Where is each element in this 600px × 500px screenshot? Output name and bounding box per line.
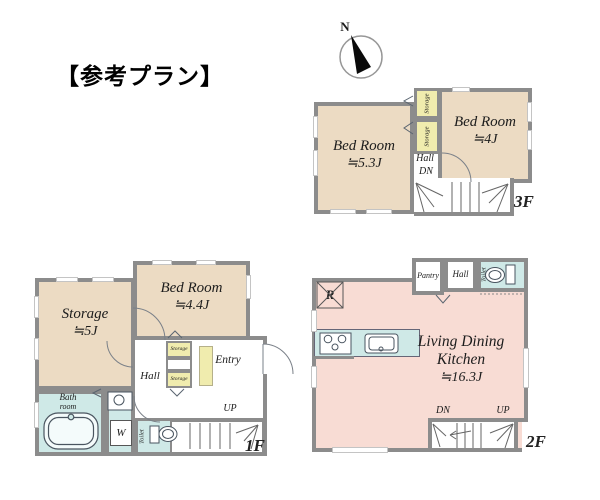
wardrobe-box-1f [166,358,192,371]
floor-plan-page: 【参考プラン】 N Storage Storage Bed Room ≒5.3J… [0,0,600,500]
washer-box: W [110,420,132,446]
up-label: UP [490,405,516,416]
storage-closet-1f-lower: Storage [166,371,192,388]
room-label: Bed Room [314,138,414,155]
down-label: DN [430,405,456,416]
entry-label: Entry [208,354,248,367]
storage-closet-3f-lower: Storage [414,119,440,154]
room-label: Kitchen [390,351,532,368]
floor-number-label: 2F [526,433,556,452]
storage-closet-label: Storage [170,376,187,382]
window [92,277,114,282]
room-label: Bed Room [133,280,250,297]
page-title: 【参考プラン】 [56,64,286,89]
room-size-label: ≒5.3J [314,156,414,171]
window [311,366,317,388]
fridge-label: R [326,288,335,302]
window [452,87,470,92]
room-label: Bed Room [438,114,532,131]
room-size-label: ≒4.4J [133,298,250,313]
down-label: DN [412,166,440,177]
bathroom-label: room [38,403,98,412]
powder-room-label: room [103,403,137,411]
storage-closet-label: Storage [423,126,430,146]
up-label: UP [216,403,244,414]
storage-closet-label: Storage [170,346,187,352]
room-size-label: ≒4J [438,132,532,147]
hall-label: Hall [134,370,166,382]
pantry-label-wrap: Pantry [413,259,443,293]
storage-closet-1f-upper: Storage [166,341,192,358]
stairs-3f [414,178,514,216]
hall-label: Hall [410,153,440,164]
fridge-space: R [317,282,343,308]
washer-label: W [116,427,125,439]
window [311,310,317,332]
room-label: Storage [35,306,135,323]
window [366,209,392,214]
window [34,338,39,360]
pantry-label: Pantry [417,272,439,281]
window [313,116,318,138]
window [332,447,388,453]
toilet-label: Toilet [138,430,145,445]
toilet-label: Toilet [480,267,487,282]
floor-number-label: 3F [514,193,544,212]
window [152,260,172,265]
hall-label: Hall [452,270,468,280]
toilet-label-wrap: Toilet [136,420,148,454]
floor-number-label: 1F [245,437,275,456]
room-size-label: ≒5J [35,324,135,339]
compass-north-label: N [336,20,354,34]
compass-needle [351,35,371,74]
stairs-2f [428,418,518,452]
wall-segment [35,452,267,456]
compass-icon [340,35,382,78]
storage-closet-label: Storage [423,93,430,113]
room-size-label: ≒16.3J [390,370,532,385]
window [56,277,78,282]
window [196,260,216,265]
hall-2f: Hall [444,258,477,292]
wall-segment [314,356,354,359]
wall-segment [263,336,267,344]
toilet-label-wrap: Toilet [478,259,490,290]
storage-closet-3f-upper: Storage [414,88,440,119]
window [330,209,356,214]
room-label: Living Dining [390,333,532,350]
